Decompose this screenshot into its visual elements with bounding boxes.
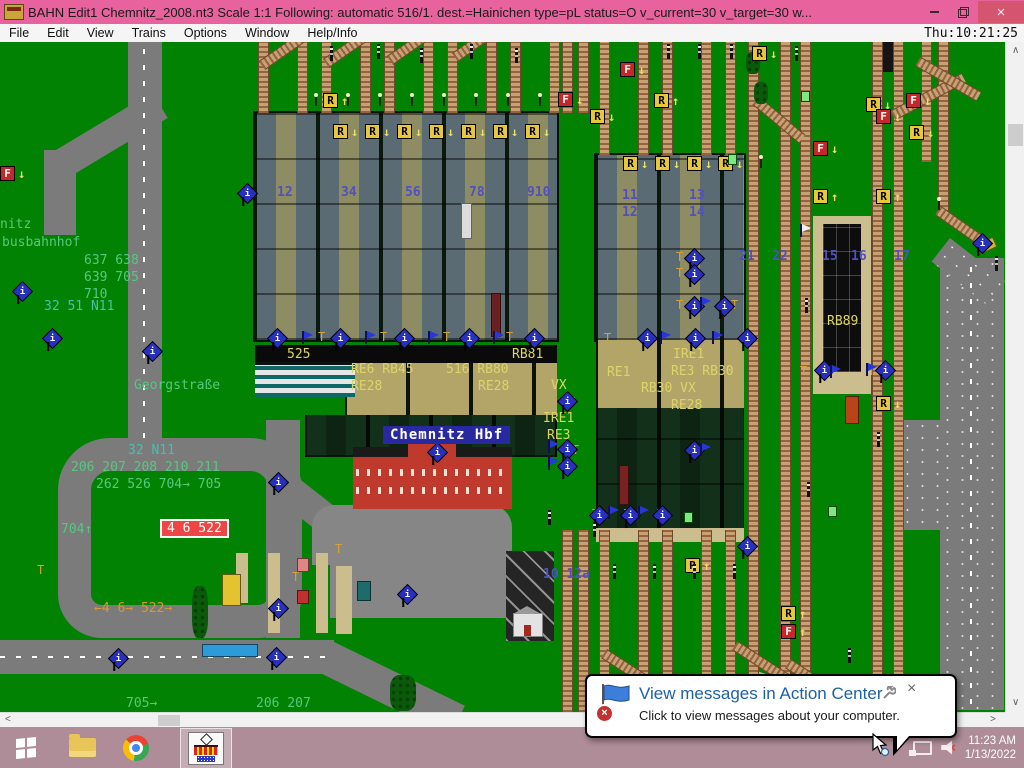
r-sign-icon: R: [365, 124, 380, 139]
r-sign-icon: R: [752, 46, 767, 61]
notification-body[interactable]: Click to view messages about your comput…: [639, 708, 900, 723]
menu-options[interactable]: Options: [175, 26, 236, 40]
map-label: 16: [851, 250, 867, 264]
f-sign-icon: F: [906, 93, 921, 108]
track-sign: R↑: [685, 558, 710, 573]
flag-icon: [830, 365, 832, 378]
map-label: T: [506, 330, 513, 344]
direction-arrow-icon: ↓: [705, 157, 712, 171]
track-sign: R↓: [461, 124, 486, 139]
map-label: IRE1: [673, 348, 704, 362]
menu-items: FileEditViewTrainsOptionsWindowHelp/Info: [0, 26, 366, 40]
white-flag-icon: [800, 224, 802, 237]
tree: [192, 586, 208, 638]
map-label: T: [676, 298, 683, 312]
dwarf-signal-icon: [801, 91, 810, 102]
map-label: T: [380, 330, 387, 344]
bus-stop-strip: [336, 566, 352, 634]
map-label: T: [37, 563, 44, 577]
minimize-button[interactable]: [920, 1, 949, 23]
r-sign-icon: R: [876, 396, 891, 411]
r-sign-icon: R: [781, 606, 796, 621]
track-sign: R↓: [493, 124, 518, 139]
direction-arrow-icon: ↓: [511, 125, 518, 139]
map-label: 56: [405, 186, 421, 200]
map-label: ←4 6→ 522→: [94, 602, 172, 616]
map-label: 12: [277, 186, 293, 200]
station-side-building: [255, 362, 355, 397]
map-label: 910: [527, 186, 550, 200]
vehicle[interactable]: [222, 574, 241, 606]
vehicle[interactable]: [845, 396, 859, 424]
direction-arrow-icon: ↓: [831, 142, 838, 156]
map-label: RE3 RB30: [671, 365, 734, 379]
flag-icon: [638, 506, 640, 519]
tray-time: 11:23 AM: [965, 734, 1016, 748]
track-sign: R↓: [655, 156, 680, 171]
flag-icon: [548, 457, 550, 470]
direction-arrow-icon: ↓: [608, 110, 615, 124]
r-sign-icon: R: [333, 124, 348, 139]
info-icon[interactable]: [42, 328, 63, 349]
flag-icon: [365, 331, 367, 344]
map-label: VX: [551, 379, 567, 393]
rail-track: [701, 42, 712, 155]
r-sign-icon: R: [323, 93, 338, 108]
map-label: RB81: [512, 348, 543, 362]
f-sign-icon: F: [620, 62, 635, 77]
flag-icon: [660, 331, 662, 344]
signal-icon: [347, 96, 349, 106]
signal-icon: [539, 96, 541, 106]
r-sign-icon: R: [654, 93, 669, 108]
r-sign-icon: R: [813, 189, 828, 204]
wrench-icon[interactable]: [882, 686, 896, 700]
title-bar[interactable]: BAHN Edit1 Chemnitz_2008.nt3 Scale 1:1 F…: [0, 0, 1024, 24]
small-house: [513, 613, 543, 637]
signal-icon: [698, 44, 701, 59]
bahn-app-icon: [4, 4, 24, 20]
map-label: 705→: [126, 697, 157, 711]
scroll-right-arrow[interactable]: >: [990, 715, 996, 725]
minimize-icon: [930, 11, 939, 13]
direction-arrow-icon: ↑: [799, 625, 806, 639]
mouse-cursor: [872, 733, 889, 757]
map-label: 637 638: [84, 254, 139, 268]
signal-icon: [330, 46, 333, 61]
map-label: T: [443, 330, 450, 344]
flag-icon: [700, 443, 702, 456]
r-sign-icon: R: [493, 124, 508, 139]
flag-icon: [302, 331, 304, 344]
map-label: 262 526 704→ 705: [96, 478, 221, 492]
signal-icon: [653, 564, 656, 579]
signal-icon: [548, 510, 551, 525]
signal-icon: [593, 522, 596, 537]
station-plaza: [312, 505, 512, 565]
rail-track: [599, 42, 610, 155]
r-sign-icon: R: [525, 124, 540, 139]
map-canvas[interactable]: nitzbusbahnhof637 638639 70571032 51 N11…: [0, 42, 1005, 712]
direction-arrow-icon: ↑: [799, 607, 806, 621]
tray-clock[interactable]: 11:23 AM 1/13/2022: [965, 734, 1016, 762]
rail-track: [360, 42, 371, 113]
vehicle[interactable]: [461, 203, 472, 239]
track-sign: R↑: [781, 606, 806, 621]
station-name-sign: Chemnitz Hbf: [383, 426, 510, 444]
signal-icon: [730, 44, 733, 59]
r-sign-icon: R: [461, 124, 476, 139]
dwarf-signal-icon: [684, 512, 693, 523]
direction-arrow-icon: ↑: [894, 190, 901, 204]
map-label: Georgstraße: [134, 379, 220, 393]
window-title: BAHN Edit1 Chemnitz_2008.nt3 Scale 1:1 F…: [28, 5, 920, 20]
signal-icon: [667, 44, 670, 59]
f-sign-icon: F: [558, 92, 573, 107]
file-explorer-button[interactable]: [58, 727, 106, 768]
track-sign: F↓: [558, 92, 583, 107]
map-label: 32 51 N11: [44, 300, 114, 314]
map-label: RE28: [478, 380, 509, 394]
direction-arrow-icon: ↓: [736, 157, 743, 171]
simulation-clock: Thu:10:21:25: [924, 26, 1018, 41]
vertical-scroll-thumb[interactable]: [1008, 124, 1023, 146]
signal-icon: [515, 48, 518, 63]
direction-arrow-icon: ↓: [673, 157, 680, 171]
map-label: RE28: [351, 380, 382, 394]
rail-track: [423, 42, 434, 113]
vehicle[interactable]: [202, 644, 258, 657]
map-label: 32 N11: [128, 444, 175, 458]
direction-arrow-icon: ↓: [894, 110, 901, 124]
map-label: busbahnhof: [2, 236, 80, 250]
map-label: 21: [739, 250, 755, 264]
direction-arrow-icon: ↓: [927, 126, 934, 140]
parking-lot: [900, 420, 942, 530]
parking-lot: [940, 258, 1004, 710]
tray-date: 1/13/2022: [965, 748, 1016, 762]
map-label: T: [676, 250, 683, 264]
map-label: 704↑: [61, 523, 92, 537]
map-label: RE1: [607, 366, 630, 380]
map-label: 14: [689, 206, 705, 220]
flag-icon: [608, 506, 610, 519]
map-label: 525: [287, 348, 310, 362]
signal-icon: [420, 48, 423, 63]
track-sign: F↓: [0, 166, 25, 181]
horizontal-scroll-thumb[interactable]: [158, 715, 180, 726]
f-sign-icon: F: [876, 109, 891, 124]
signal-icon: [470, 44, 473, 59]
track-sign: R↓: [429, 124, 454, 139]
menu-file[interactable]: File: [0, 26, 38, 40]
signal-icon: [411, 96, 413, 106]
bus-stop-strip: [316, 553, 328, 633]
track-sign: R↓: [876, 396, 901, 411]
info-icon[interactable]: [972, 233, 993, 254]
track-sign: R↓: [365, 124, 390, 139]
info-icon[interactable]: [557, 456, 578, 477]
signal-icon: [693, 564, 696, 579]
flag-icon: [428, 331, 430, 344]
map-label: 15: [822, 250, 838, 264]
r-sign-icon: R: [397, 124, 412, 139]
direction-arrow-icon: ↑: [672, 94, 679, 108]
map-label: RB30 VX: [641, 382, 696, 396]
rail-track: [258, 42, 269, 113]
rail-track: [452, 42, 516, 62]
signal-icon: [507, 96, 509, 106]
track-sign: R↓: [909, 125, 934, 140]
signal-icon: [760, 158, 762, 168]
direction-arrow-icon: ↓: [447, 125, 454, 139]
road-centerline: [970, 264, 972, 704]
notification-close-icon[interactable]: ×: [907, 680, 916, 698]
scroll-up-arrow[interactable]: ∧: [1012, 46, 1019, 56]
r-sign-icon: R: [655, 156, 670, 171]
menu-view[interactable]: View: [78, 26, 123, 40]
tree: [754, 82, 768, 104]
direction-arrow-icon: ↓: [924, 94, 931, 108]
track-sign: F↑: [781, 624, 806, 639]
flag-icon: [700, 297, 702, 310]
map-label: 206 207 208 210 211: [71, 461, 220, 475]
bahn-taskbar-button[interactable]: [180, 728, 232, 768]
map-label: 11: [622, 189, 638, 203]
r-sign-icon: R: [909, 125, 924, 140]
f-sign-icon: F: [813, 141, 828, 156]
f-sign-icon: F: [781, 624, 796, 639]
direction-arrow-icon: ↓: [479, 125, 486, 139]
map-label: 10 12a: [543, 568, 590, 582]
map-label: RE28: [671, 399, 702, 413]
map-label: T: [604, 331, 611, 345]
start-button[interactable]: [2, 727, 50, 768]
direction-arrow-icon: ↑: [831, 190, 838, 204]
f-sign-icon: F: [0, 166, 15, 181]
road: [44, 150, 76, 235]
signal-icon: [443, 96, 445, 106]
map-label: 17: [894, 250, 910, 264]
vehicle[interactable]: [357, 581, 371, 601]
signal-icon: [848, 648, 851, 663]
notification-title[interactable]: View messages in Action Center: [639, 684, 882, 704]
track-sign: R↑: [813, 189, 838, 204]
map-label: T: [800, 364, 807, 378]
track-sign: F↓: [620, 62, 645, 77]
track-sign: F↓: [813, 141, 838, 156]
chrome-button[interactable]: [112, 727, 160, 768]
restore-icon: [958, 7, 969, 18]
direction-arrow-icon: ↑: [703, 559, 710, 573]
direction-arrow-icon: ↓: [18, 167, 25, 181]
map-label: 34: [341, 186, 357, 200]
direction-arrow-icon: ↓: [641, 157, 648, 171]
signal-icon: [377, 44, 380, 59]
vehicle[interactable]: [297, 590, 309, 604]
map-label: IRE1: [543, 412, 574, 426]
direction-arrow-icon: ↓: [543, 125, 550, 139]
rail-track: [486, 42, 497, 113]
volume-muted-icon[interactable]: ×: [941, 740, 956, 755]
desktop: BAHN Edit1 Chemnitz_2008.nt3 Scale 1:1 F…: [0, 0, 1024, 768]
rail-track: [748, 42, 759, 712]
map-label: 639 705: [84, 271, 139, 285]
signal-icon: [613, 564, 616, 579]
signal-icon: [877, 432, 880, 447]
signal-icon: [938, 200, 940, 210]
track-sign: R↓: [752, 46, 777, 61]
direction-arrow-icon: ↓: [415, 125, 422, 139]
platform-roof: [823, 224, 861, 372]
dwarf-signal-icon: [728, 154, 737, 165]
bahn-icon: [188, 732, 224, 765]
signal-icon: [805, 298, 808, 313]
rail-track: [638, 42, 649, 155]
vehicle[interactable]: [619, 465, 629, 505]
flag-icon: [548, 440, 550, 453]
flag-icon: [493, 331, 495, 344]
map-label: 12: [622, 206, 638, 220]
map-label: 78: [469, 186, 485, 200]
direction-arrow-icon: ↓: [383, 125, 390, 139]
signal-icon: [379, 96, 381, 106]
restore-button[interactable]: [949, 1, 978, 23]
scroll-left-arrow[interactable]: <: [5, 715, 11, 725]
chrome-icon: [123, 735, 149, 761]
balloon-tail: [897, 729, 915, 750]
track-sign: R↓: [333, 124, 358, 139]
track-sign: R↓: [590, 109, 615, 124]
close-button[interactable]: ×: [978, 1, 1024, 23]
signal-icon: [315, 96, 317, 106]
flag-icon: [866, 363, 868, 376]
track-sign: R↓: [525, 124, 550, 139]
error-badge-icon: ×: [595, 704, 614, 723]
rail-track: [893, 42, 904, 712]
map-label: T: [335, 542, 342, 556]
map-label: T: [292, 570, 299, 584]
signal-icon: [733, 564, 736, 579]
signal-icon: [995, 256, 998, 271]
menu-trains[interactable]: Trains: [123, 26, 175, 40]
menu-window[interactable]: Window: [236, 26, 298, 40]
map-label: T: [318, 330, 325, 344]
vertical-scrollbar[interactable]: ∧ ∨: [1005, 42, 1024, 712]
direction-arrow-icon: ↓: [638, 63, 645, 77]
windows-logo-icon: [16, 736, 36, 758]
scroll-down-arrow[interactable]: ∨: [1012, 698, 1019, 708]
r-sign-icon: R: [687, 156, 702, 171]
folder-icon: [69, 738, 96, 757]
direction-arrow-icon: ↓: [770, 47, 777, 61]
menu-bar: FileEditViewTrainsOptionsWindowHelp/Info…: [0, 24, 1024, 43]
direction-arrow-icon: ↓: [894, 397, 901, 411]
track-sign: R↓: [687, 156, 712, 171]
track-sign: R↑: [876, 189, 901, 204]
map-label: RB89: [827, 315, 858, 329]
map-label: 13: [689, 189, 705, 203]
map-label: 206 207: [256, 697, 311, 711]
track-sign: R↓: [623, 156, 648, 171]
r-sign-icon: R: [590, 109, 605, 124]
track-sign: F↓: [906, 93, 931, 108]
rail-track: [387, 42, 451, 65]
tree: [390, 675, 416, 711]
map-label: 22: [772, 250, 788, 264]
map-label: RE6 RB45: [351, 363, 414, 377]
rail-track: [297, 42, 308, 113]
menu-help-info[interactable]: Help/Info: [298, 26, 366, 40]
r-sign-icon: R: [429, 124, 444, 139]
direction-arrow-icon: ↓: [351, 125, 358, 139]
stop-number-box: 4 6 522: [160, 519, 229, 538]
signal-icon: [475, 96, 477, 106]
track-sign: R↑: [323, 93, 348, 108]
map-label: nitz: [0, 218, 31, 232]
signal-icon: [795, 46, 798, 61]
map-label: 516 RB80: [446, 363, 509, 377]
track-sign: R↓: [397, 124, 422, 139]
flag-icon: [712, 331, 714, 344]
signal-icon: [807, 482, 810, 497]
map-label: T: [676, 266, 683, 280]
info-icon[interactable]: [12, 281, 33, 302]
scrollbar-corner: [1005, 712, 1024, 727]
r-sign-icon: R: [876, 189, 891, 204]
track-sign: R↑: [654, 93, 679, 108]
r-sign-icon: R: [623, 156, 638, 171]
menu-edit[interactable]: Edit: [38, 26, 78, 40]
platform-hall-main: [255, 113, 557, 340]
rail-track: [562, 530, 573, 712]
direction-arrow-icon: ↓: [576, 93, 583, 107]
track-sign: F↓: [876, 109, 901, 124]
dwarf-signal-icon: [828, 506, 837, 517]
